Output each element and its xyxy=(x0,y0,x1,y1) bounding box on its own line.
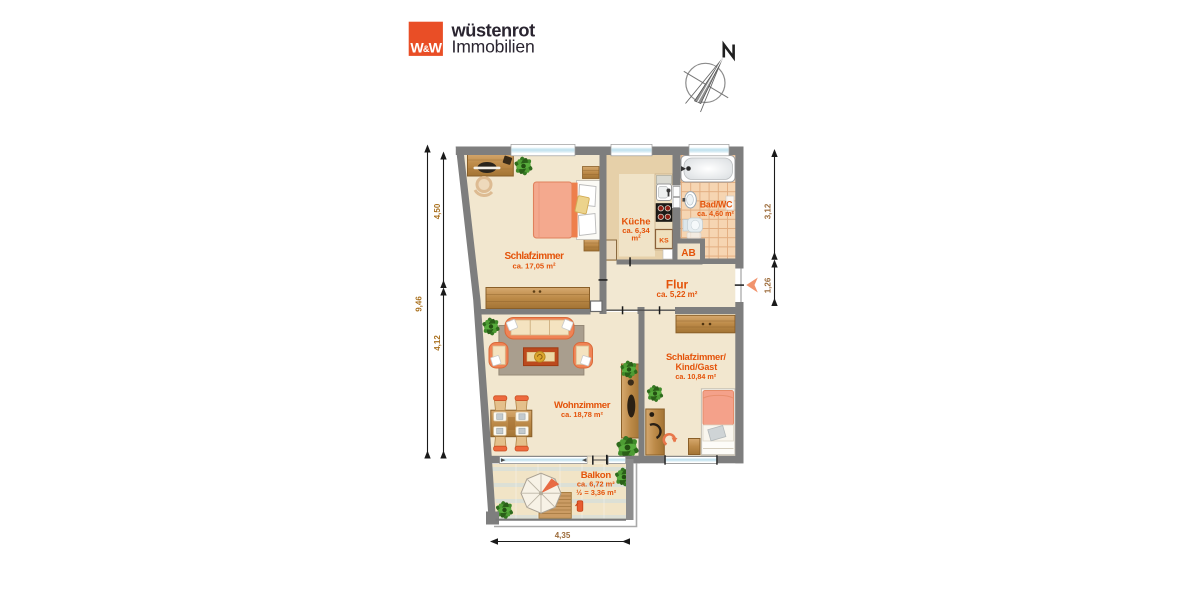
svg-text:9,46: 9,46 xyxy=(415,296,424,312)
svg-text:Schlafzimmer: Schlafzimmer xyxy=(504,251,564,262)
svg-text:AB: AB xyxy=(681,248,695,259)
svg-text:ca. 18,78 m²: ca. 18,78 m² xyxy=(561,410,603,419)
svg-text:½ = 3,36 m²: ½ = 3,36 m² xyxy=(576,488,617,497)
svg-text:4,35: 4,35 xyxy=(555,531,571,540)
svg-text:Schlafzimmer/: Schlafzimmer/ xyxy=(666,351,726,362)
svg-text:4,50: 4,50 xyxy=(433,203,442,219)
svg-text:Kind/Gast: Kind/Gast xyxy=(675,362,717,372)
svg-text:1,26: 1,26 xyxy=(764,277,773,293)
svg-text:Immobilien: Immobilien xyxy=(452,36,535,56)
svg-text:4,12: 4,12 xyxy=(433,335,442,351)
svg-text:ca. 17,05 m²: ca. 17,05 m² xyxy=(512,262,556,271)
svg-text:ca. 10,84 m²: ca. 10,84 m² xyxy=(675,372,716,381)
svg-text:ca. 4,60 m²: ca. 4,60 m² xyxy=(697,209,734,218)
svg-text:ca. 5,22 m²: ca. 5,22 m² xyxy=(657,290,698,299)
svg-text:m²: m² xyxy=(631,234,641,243)
svg-text:Bad/WC: Bad/WC xyxy=(700,200,733,210)
svg-text:KS: KS xyxy=(659,238,669,245)
svg-text:3,12: 3,12 xyxy=(764,203,773,219)
